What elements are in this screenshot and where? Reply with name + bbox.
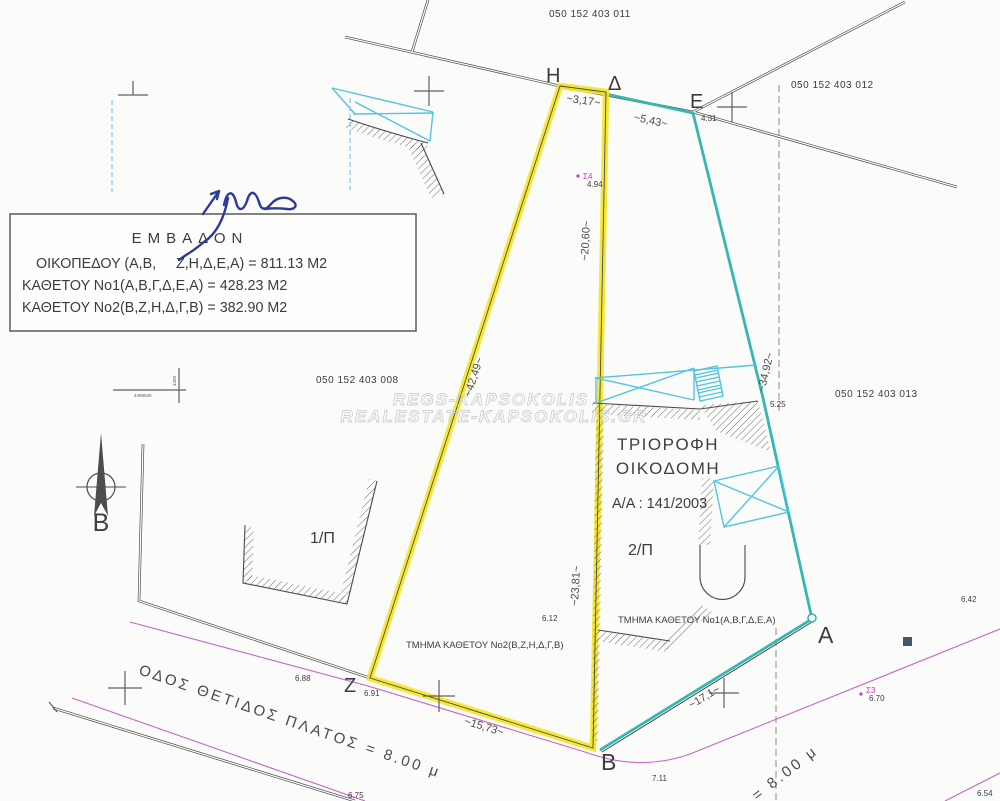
sheet-grid-dashed-line <box>776 85 779 801</box>
elev-675: 6.75 <box>348 791 364 800</box>
section-no1-label: ΤΜΗΜΑ ΚΑΘΕΤΟΥ Νο1(Α,Β,Γ,Δ,Ε,Α) <box>618 615 776 626</box>
dim-ba: ~17,1~ <box>687 683 723 711</box>
stairs-icon <box>694 366 723 401</box>
area-table: ΕΜΒΑΔΟΝ ΟΙΚΟΠΕΔΟΥ (Α,Β, Ζ,Η,Δ,Ε,Α) = 811… <box>10 214 416 331</box>
point-label-h: Η <box>546 65 560 87</box>
point-label-z: Ζ <box>344 675 356 697</box>
elev-711: 7.11 <box>652 774 668 783</box>
dim-de: ~5,43~ <box>633 112 669 131</box>
cadastral-survey-plan: Β REGS-KAPSOKOLIS REALESTATE-KAPSOKOLIS.… <box>0 0 1000 801</box>
building-name-line1: ΤΡΙΟΡΟΦΗ <box>617 435 719 454</box>
grid-ref-vertical: 4493 <box>172 375 177 386</box>
grid-reference: 4499040 4493 <box>134 375 177 398</box>
north-arrow: Β <box>76 433 126 537</box>
floor-label-2p: 2/Π <box>628 542 653 559</box>
section-no2-label: ΤΜΗΜΑ ΚΑΘΕΤΟΥ Νο2(Β,Ζ,Η,Δ,Γ,Β) <box>406 640 563 651</box>
station-s4: Σ4 <box>583 172 593 181</box>
elev-612: 6.12 <box>542 614 558 623</box>
dim-hd: ~3,17~ <box>566 93 602 110</box>
road-east-width-label: = 8.00 μ <box>749 742 822 801</box>
building-name-line2: ΟΙΚΟΔΟΜΗ <box>616 459 720 478</box>
grid-ref-horizontal: 4499040 <box>134 393 152 398</box>
point-label-b: Β <box>601 749 616 775</box>
road-thetidos-label: ΟΔΟΣ ΘΕΤΙΔΟΣ ΠΛΑΤΟΣ = 8.00 μ <box>137 662 444 782</box>
elev-431: 4.31 <box>701 114 717 123</box>
north-label: Β <box>93 509 110 537</box>
parcel-id-011: 050 152 403 011 <box>549 9 631 20</box>
point-a-marker <box>808 614 816 622</box>
plan-canvas: Β REGS-KAPSOKOLIS REALESTATE-KAPSOKOLIS.… <box>0 0 1000 801</box>
area-row-vertical2: ΚΑΘΕΤΟΥ Νο2(Β,Ζ,Η,Δ,Γ,Β) = 382.90 Μ2 <box>22 300 287 316</box>
utility-square-marker <box>903 637 912 646</box>
elev-525: 5.25 <box>770 400 786 409</box>
dim-ea: ~34,92~ <box>756 351 777 393</box>
point-label-a: Α <box>818 622 834 648</box>
watermark-line2: REALESTATE-KAPSOKOLIS.GR <box>340 407 647 426</box>
dim-gb: ~23,81~ <box>569 565 583 606</box>
point-label-d: Δ <box>608 73 621 95</box>
station-s3: Σ3 <box>866 686 876 695</box>
point-label-e: Ε <box>690 91 703 113</box>
elev-494: 4.94 <box>587 180 603 189</box>
building-apse-outline <box>700 545 745 599</box>
elev-691: 6.91 <box>364 689 380 698</box>
elev-670: 6.70 <box>869 694 885 703</box>
parcel-id-labels: 050 152 403 011 050 152 403 012 050 152 … <box>316 9 918 400</box>
elev-654: 6.54 <box>977 789 993 798</box>
parcel-id-013: 050 152 403 013 <box>835 389 918 400</box>
elev-688: 6.88 <box>295 674 311 683</box>
area-table-title: ΕΜΒΑΔΟΝ <box>132 230 249 247</box>
floor-label-1p: 1/Π <box>310 530 335 547</box>
elev-642: 6.42 <box>961 595 977 604</box>
dim-dg: ~20,60~ <box>579 220 593 261</box>
parcel-id-012: 050 152 403 012 <box>791 80 874 91</box>
area-row-vertical1: ΚΑΘΕΤΟΥ Νο1(Α,Β,Γ,Δ,Ε,Α) = 428.23 Μ2 <box>22 278 287 294</box>
parcel-id-008: 050 152 403 008 <box>316 375 399 386</box>
building-permit: Α/Α : 141/2003 <box>612 496 707 512</box>
